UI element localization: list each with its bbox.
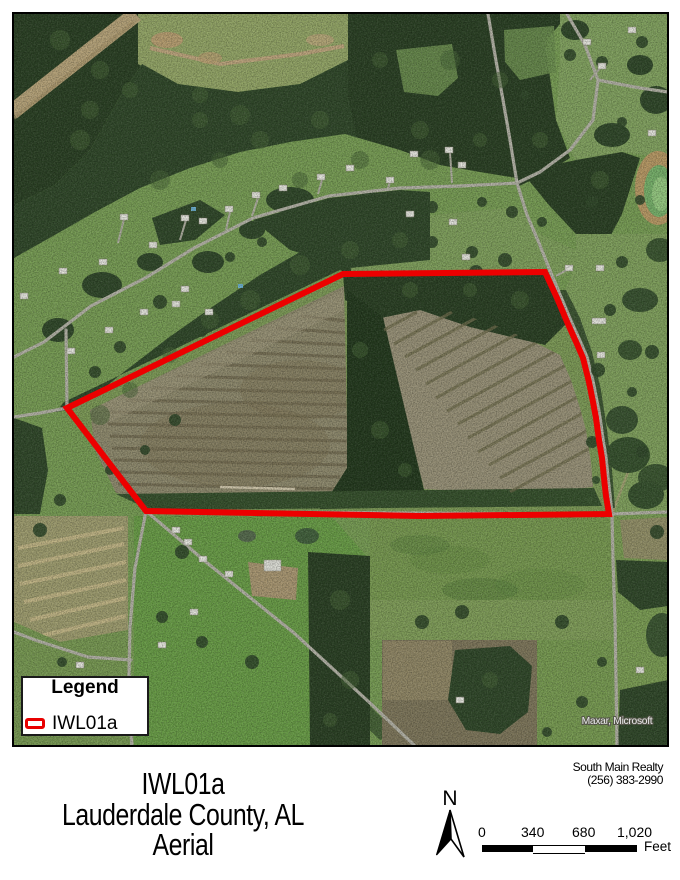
svg-text:Maxar, Microsoft: Maxar, Microsoft — [582, 716, 653, 727]
